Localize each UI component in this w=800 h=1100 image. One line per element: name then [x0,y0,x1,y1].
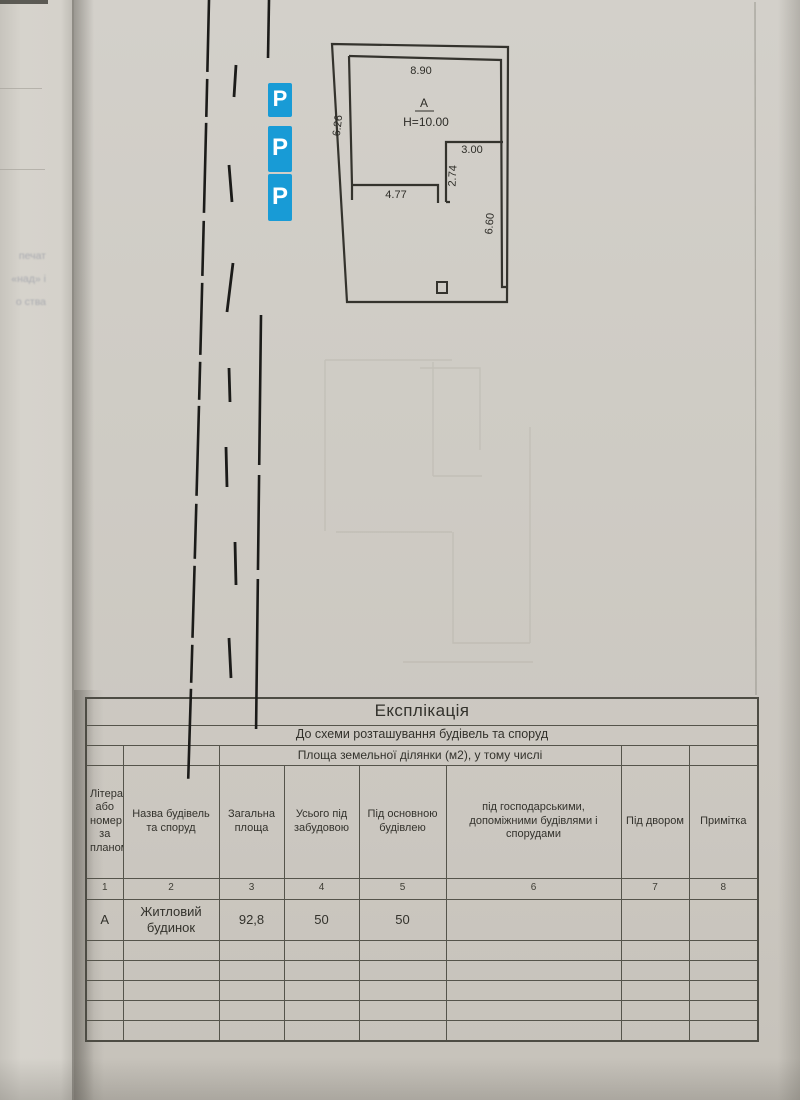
header-total-area: Загальна площа [219,765,284,878]
underlying-page-edge [0,0,74,1100]
underpage-rule [0,88,42,89]
column-number: 3 [219,878,284,899]
cell-note [689,899,758,940]
header-household: під господарськими, допоміжними будівлям… [446,765,621,878]
table-title: Експлікація [86,698,758,725]
cell-name: Житловий будинок [123,899,219,940]
header-name: Назва будівель та споруд [123,765,219,878]
parking-sign: P [268,174,292,221]
column-number: 1 [86,878,123,899]
empty-table-row [86,1000,758,1020]
area-row-empty-cell [689,745,758,765]
road-line-right [256,315,261,735]
header-built-up: Усього під забудовою [284,765,359,878]
underpage-text-fragment: «над» і [0,273,46,285]
column-number: 8 [689,878,758,899]
cell-household [446,899,621,940]
parking-sign: P [268,126,292,172]
entrance-marker [437,282,447,293]
building-letter-label: А [420,96,428,110]
cell-main-building: 50 [359,899,446,940]
dim-left-label: 6.26 [331,114,346,137]
header-note: Примітка [689,765,758,878]
bottom-edge-shade [0,1058,800,1100]
road-centerline-dashes [226,65,236,678]
parcel-boundary [332,44,508,302]
paper-fold-line [755,2,756,695]
parking-sign: P [268,83,292,117]
table-subtitle: До схеми розташування будівель та споруд [86,725,758,745]
area-row-empty-cell [123,745,219,765]
explication-table: Експлікація До схеми розташування будіве… [85,697,759,1042]
bleedthrough-floorplan [325,360,533,662]
underpage-text-fragment: о ства [0,296,46,308]
building-height-label: Н=10.00 [403,115,449,129]
dim-inner-bottom-label: 4.77 [385,189,406,201]
table-row: А Житловий будинок 92,8 50 50 [86,899,758,940]
road-line-right-top [268,0,269,58]
underpage-text-fragment: печат [0,250,46,262]
column-number: 7 [621,878,689,899]
dim-step-vertical-label: 2.74 [446,165,459,187]
background-corner [0,0,48,4]
building-outline [349,56,507,293]
empty-table-row [86,980,758,1000]
underpage-rule [0,169,45,170]
parking-sign-letter: P [272,134,288,162]
cell-letter: А [86,899,123,940]
column-number: 2 [123,878,219,899]
dim-top-label: 8.90 [410,65,431,77]
area-row-empty-cell [86,745,123,765]
road-line-left [188,0,209,786]
cell-yard [621,899,689,940]
column-number: 6 [446,878,621,899]
cell-total-area: 92,8 [219,899,284,940]
parking-sign-letter: P [272,183,288,211]
scanned-document-photo: печат «над» і о ства Експлікація До схем… [0,0,800,1100]
header-main-building: Під основною будівлею [359,765,446,878]
empty-table-row [86,960,758,980]
area-row-empty-cell [621,745,689,765]
parking-sign-letter: P [273,86,288,112]
empty-table-row [86,1020,758,1041]
right-edge-shade [778,0,800,1100]
road-boundary-lines [188,0,269,786]
column-number: 4 [284,878,359,899]
dim-step-top-label: 3.00 [461,144,482,156]
column-number: 5 [359,878,446,899]
area-span-header: Площа земельної ділянки (м2), у тому чис… [219,745,621,765]
cell-built-up: 50 [284,899,359,940]
header-yard: Під двором [621,765,689,878]
dim-right-label: 6.60 [483,213,497,235]
empty-table-row [86,940,758,960]
header-letter: Літера або номер за планом [86,765,123,878]
